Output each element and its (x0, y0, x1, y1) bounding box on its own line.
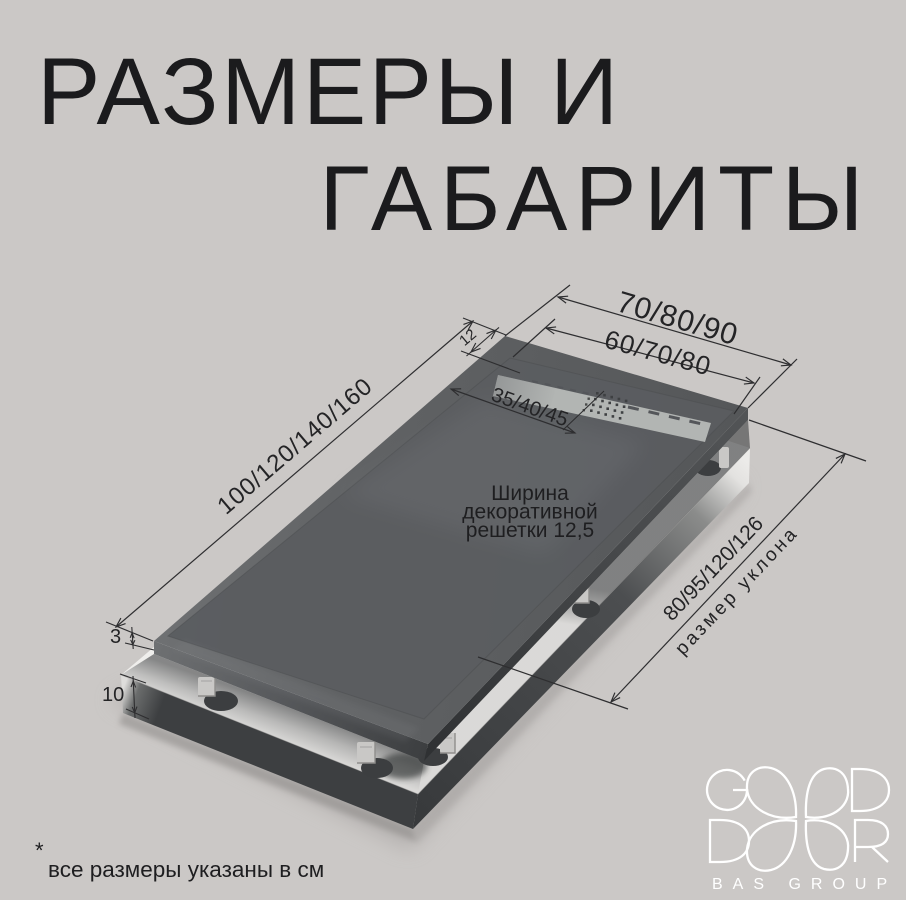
svg-text:РАЗМЕРЫ И: РАЗМЕРЫ И (37, 39, 621, 145)
svg-text:все размеры указаны в см: все размеры указаны в см (48, 857, 324, 882)
svg-text:10: 10 (102, 684, 124, 706)
svg-text:BAS GROUP: BAS GROUP (712, 876, 897, 893)
svg-text:3: 3 (110, 626, 121, 648)
svg-text:решетки 12,5: решетки 12,5 (466, 519, 594, 542)
svg-text:ГАБАРИТЫ: ГАБАРИТЫ (320, 148, 871, 250)
svg-text:*: * (35, 838, 44, 863)
